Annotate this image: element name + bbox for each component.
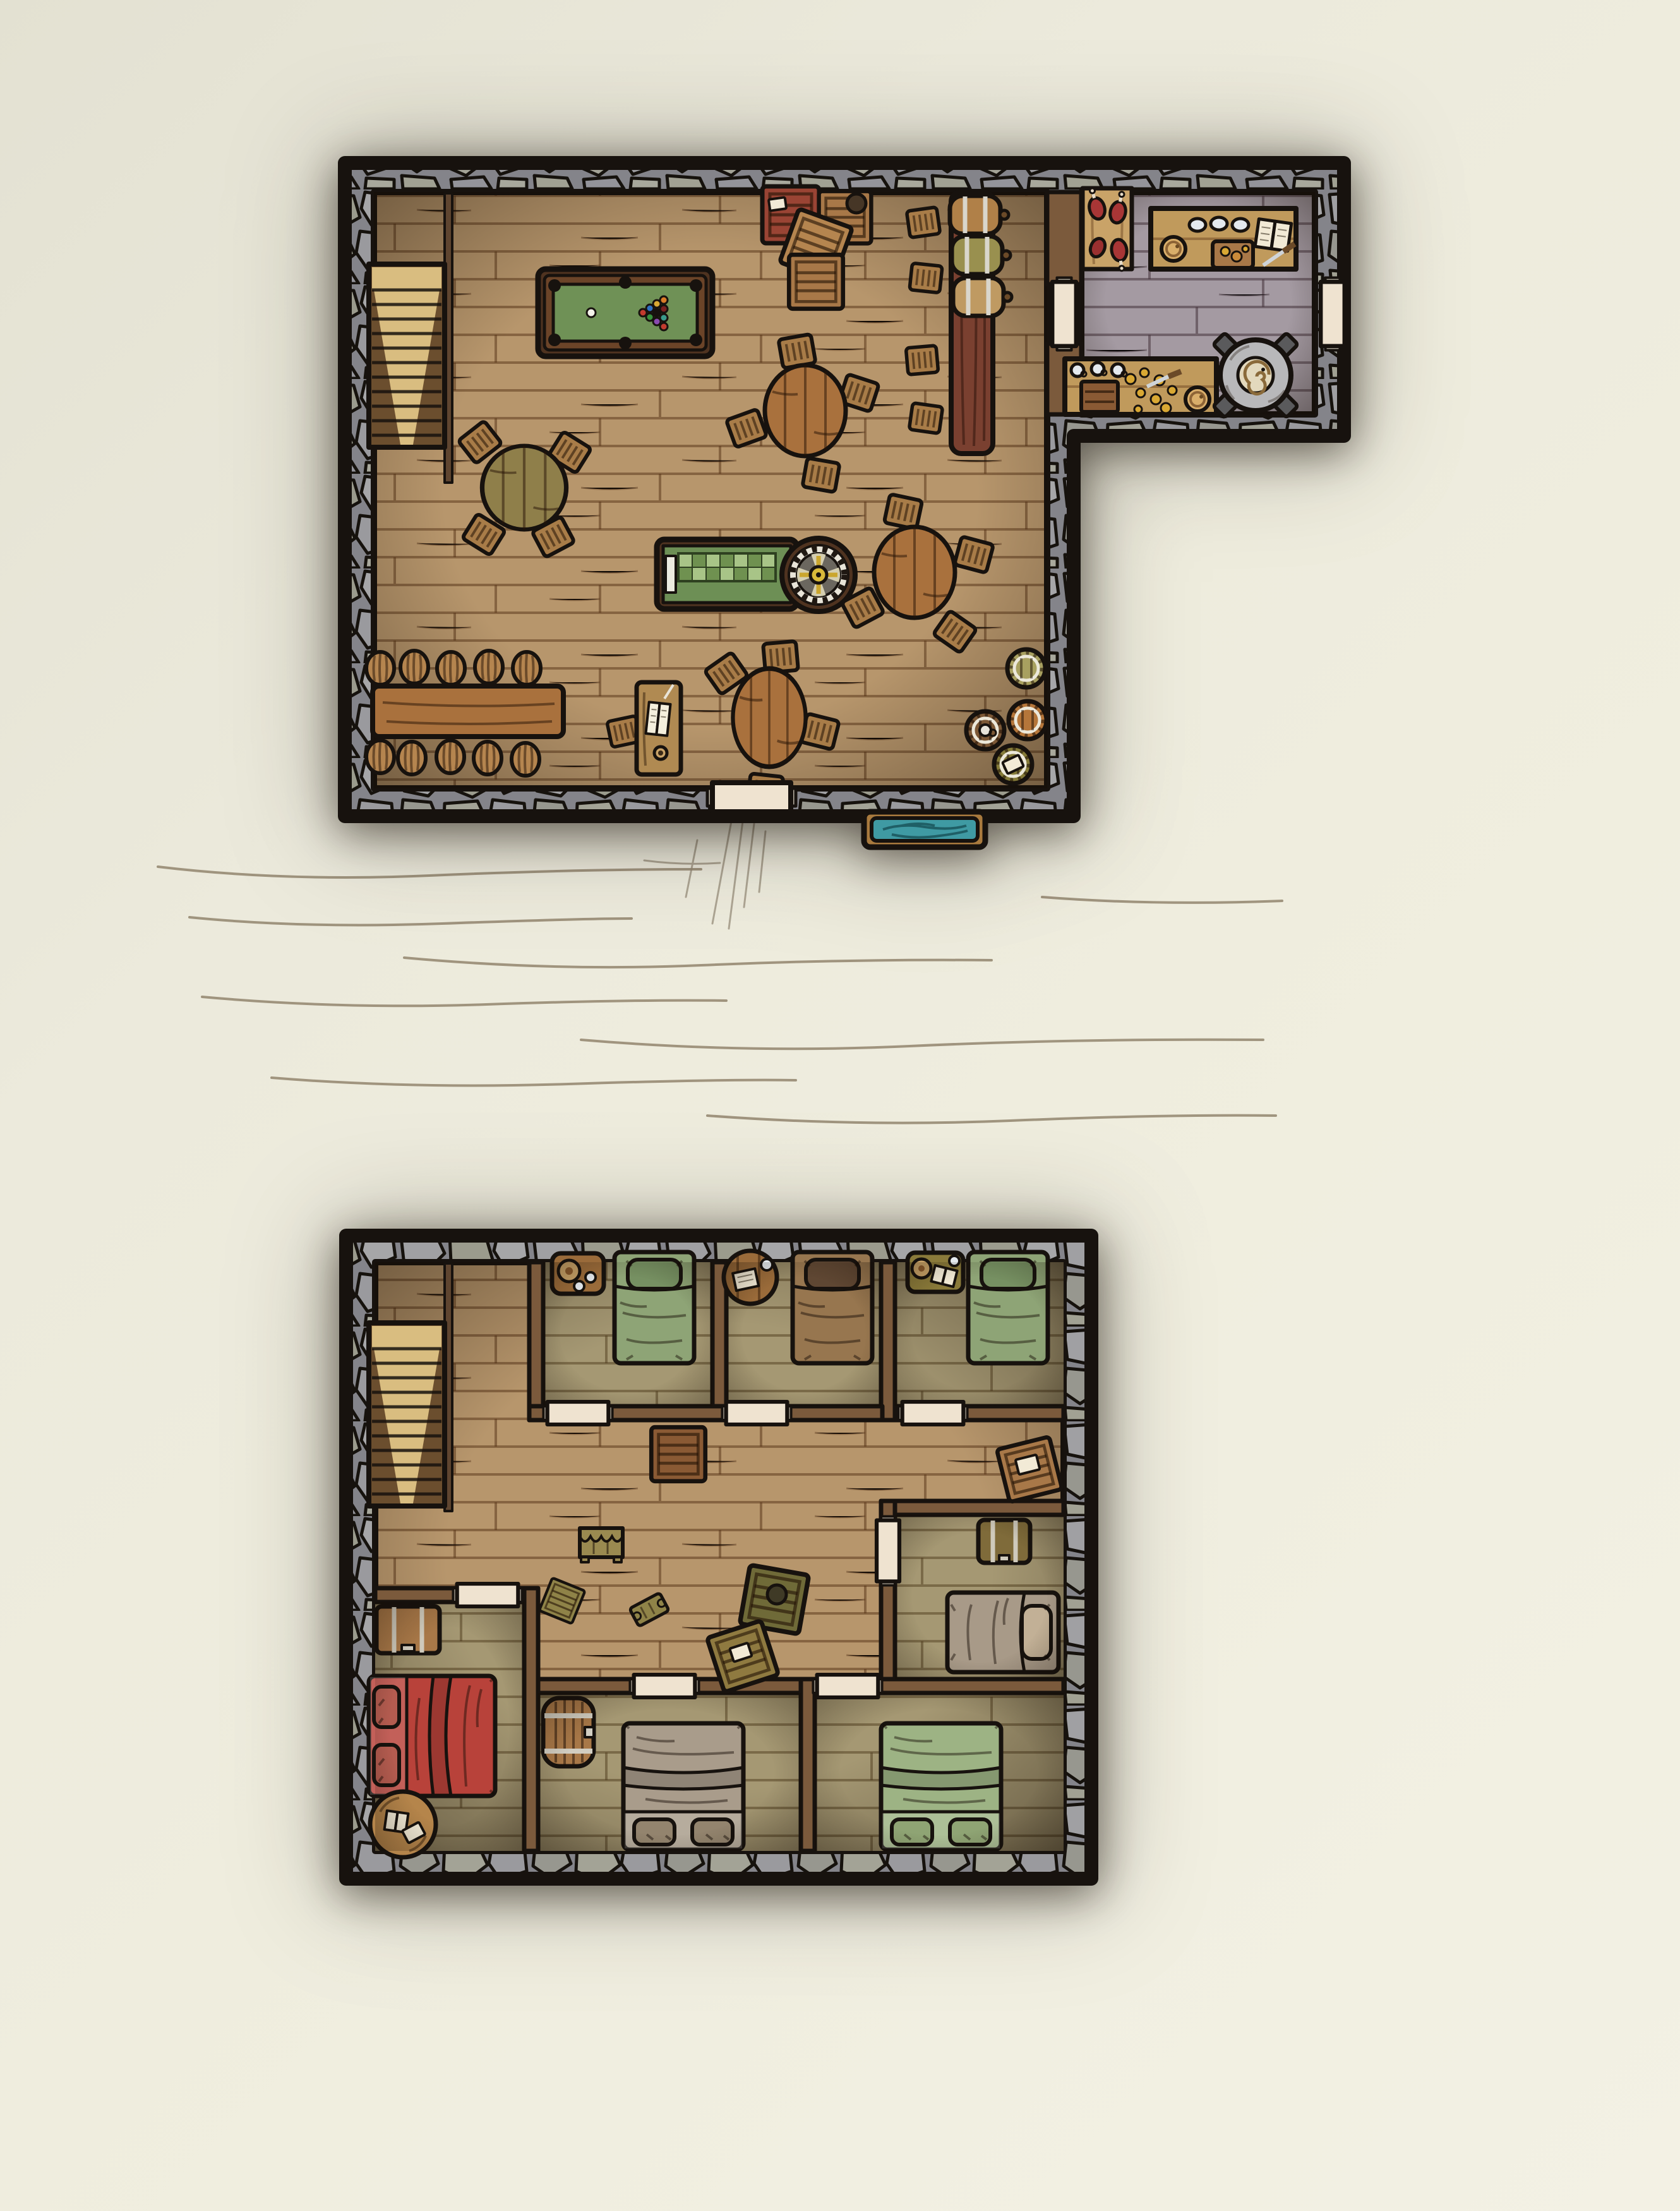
- hall-crate-label: [997, 1437, 1062, 1502]
- bread-icon: [1161, 237, 1185, 261]
- plates-icon: [1189, 217, 1249, 231]
- page-background: [0, 0, 1680, 2211]
- hall-crate-1: [651, 1427, 705, 1481]
- kitchen-counter: [1151, 208, 1296, 269]
- upper-floor-map: [346, 1236, 1091, 1879]
- kitchen-inner-door: [1052, 278, 1076, 351]
- keg-brown: [950, 196, 1009, 234]
- prep-bread-icon: [1185, 387, 1209, 411]
- cutting-board-icon: [1213, 241, 1253, 268]
- keg-olive: [952, 236, 1011, 274]
- bedroom-3-door: [898, 1402, 967, 1425]
- pool-table: [538, 269, 712, 356]
- staircase-icon-upper: [369, 1323, 445, 1506]
- kitchen-outer-door: [1321, 278, 1345, 351]
- staircase-icon: [369, 264, 445, 447]
- bedroom-2-door: [722, 1402, 791, 1425]
- checker-felt: [678, 553, 776, 581]
- stone-stove: [1213, 333, 1298, 418]
- bedroom-7-door: [813, 1675, 882, 1697]
- bedroom-1-door: [543, 1402, 612, 1425]
- keg-light: [953, 278, 1012, 316]
- ground-floor-map: [345, 163, 1345, 847]
- craps-table: [657, 538, 855, 611]
- barrel-with-paper: [994, 745, 1032, 783]
- recipe-book-icon: [1255, 219, 1292, 251]
- bedroom-6-door: [630, 1675, 699, 1697]
- ground-texture: [158, 821, 1282, 1123]
- cups-icon: [1071, 363, 1127, 377]
- meat-board: [1083, 186, 1132, 272]
- prep-table: [1065, 359, 1216, 414]
- open-book-icon: [645, 702, 670, 735]
- small-crate-icon: [1081, 382, 1118, 412]
- bottom-crate: [789, 255, 843, 309]
- bedroom-4-door: [877, 1516, 899, 1585]
- entrance-door: [707, 783, 796, 812]
- water-trough: [864, 812, 985, 847]
- red-bedroom-door: [453, 1584, 522, 1606]
- long-table: [366, 651, 563, 776]
- curtained-stand: [580, 1528, 623, 1562]
- barrel-with-tankard: [966, 711, 1004, 749]
